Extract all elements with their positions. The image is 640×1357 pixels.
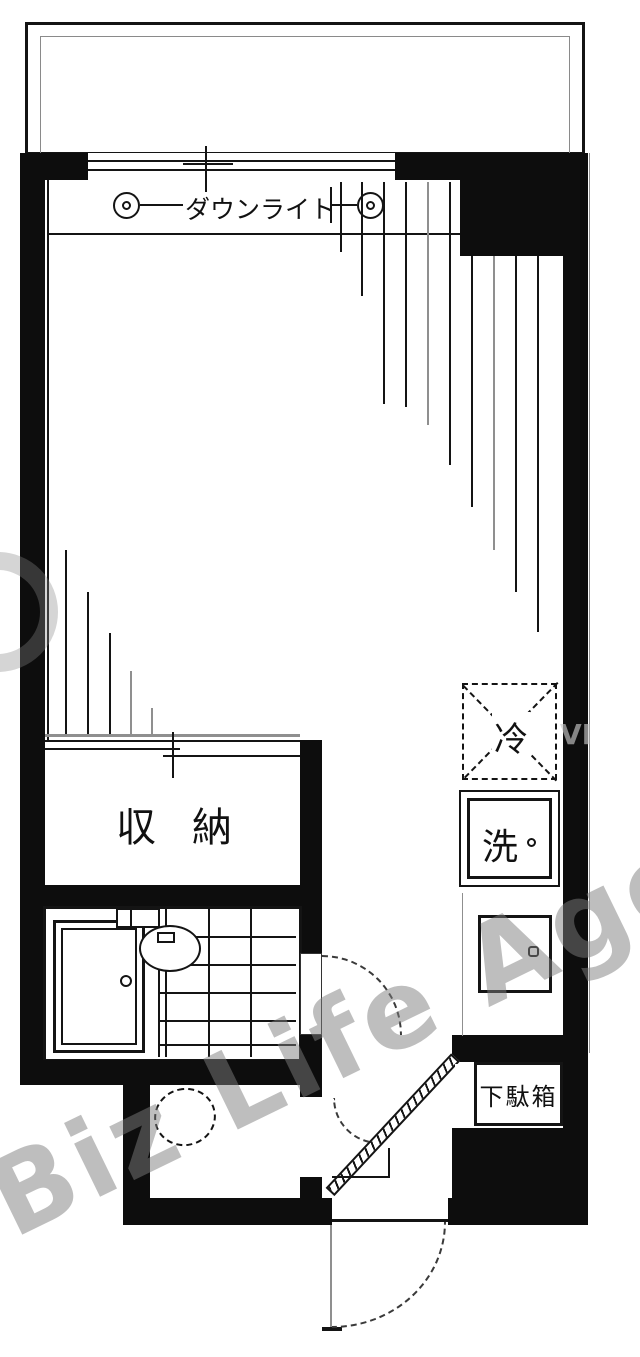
downlight-connector-line <box>140 204 183 206</box>
entrance-side-panel <box>455 1064 471 1122</box>
bath-tile-line <box>208 908 210 1057</box>
window-glazing-line <box>88 160 395 162</box>
wall-right-shadow-line <box>589 153 590 1053</box>
wall-right <box>563 153 588 1225</box>
door-swing-arc-entrance <box>332 1222 446 1328</box>
hatch-line <box>65 550 67 734</box>
hatch-line-gray <box>493 256 495 550</box>
door-swing-arc-bathroom <box>322 955 402 1035</box>
plumbing-pipe-line <box>135 928 137 990</box>
downlight-symbol-icon <box>113 192 140 219</box>
wall-below-shoebox <box>452 1128 563 1198</box>
hatch-line-gray <box>130 671 132 734</box>
kitchen-edge-line <box>462 893 463 1036</box>
kitchen-sink-unit <box>478 915 552 993</box>
toilet-tank <box>116 908 160 928</box>
bathroom-door-opening <box>300 953 322 1035</box>
downlight-symbol-inner <box>122 201 131 210</box>
wall-bottom-right <box>448 1198 563 1225</box>
window-center-tick-cross <box>183 163 233 165</box>
hatch-line <box>87 592 89 734</box>
downlight-connector-tick <box>330 187 332 223</box>
closet-door-center-tick <box>172 732 174 778</box>
closet-sliding-door-leaf <box>163 755 300 757</box>
bath-tile-line <box>158 1020 296 1022</box>
hatch-line <box>405 182 407 407</box>
closet-sliding-door-leaf <box>45 748 180 750</box>
shoe-box-label: 下駄箱 <box>480 1077 558 1112</box>
hatch-line-gray <box>151 708 153 734</box>
floor-plan: ダウンライト 収納 <box>0 0 640 1357</box>
shower-hook-icon <box>120 975 132 987</box>
refrigerator-label: 冷 <box>492 712 530 761</box>
bath-tile-line <box>158 1044 296 1046</box>
wall-left <box>20 153 45 1085</box>
wall-bathroom-bottom <box>20 1060 302 1085</box>
shoe-box: 下駄箱 <box>474 1062 563 1126</box>
downlight-connector-line <box>331 204 357 206</box>
hatch-line <box>537 256 539 632</box>
wall-top-right <box>395 153 588 180</box>
entrance-door-stop-line <box>388 1148 390 1178</box>
wall-closet-bottom <box>45 885 300 908</box>
hatch-line <box>471 256 473 507</box>
storage-label: 収納 <box>48 795 300 853</box>
wall-mid-column <box>300 740 322 953</box>
hatch-line <box>449 182 451 465</box>
hatch-line <box>515 256 517 592</box>
washer-label: 洗 <box>482 818 518 870</box>
entrance-door-stop-line <box>332 1176 390 1178</box>
bath-tile-line <box>250 908 252 1057</box>
wall-corner-block <box>460 180 563 256</box>
wall-hall-left-b <box>300 1177 322 1200</box>
wall-bottom-left <box>123 1198 332 1225</box>
hatch-line <box>361 182 363 296</box>
hatch-line <box>383 182 385 404</box>
window <box>88 153 395 180</box>
downlight-label: ダウンライト <box>185 190 335 226</box>
downlight-symbol-inner <box>366 201 375 210</box>
toilet-bowl-inner <box>157 932 175 943</box>
wall-hall-top-bar <box>452 1035 563 1062</box>
hatch-line <box>340 182 342 252</box>
washer-dot-icon <box>527 838 536 847</box>
window-glazing-line <box>88 169 395 171</box>
bath-tile-line <box>158 992 296 994</box>
wall-hall-left-a <box>300 1035 322 1097</box>
balcony-inner-line <box>40 36 570 155</box>
toilet-tank-divider <box>130 908 132 928</box>
faucet-icon <box>528 946 539 957</box>
hatch-line <box>109 633 111 734</box>
room-left-line <box>47 180 49 740</box>
hatch-line-gray <box>427 182 429 425</box>
toilet-door-opening <box>300 1097 322 1177</box>
window-center-tick <box>205 146 207 192</box>
